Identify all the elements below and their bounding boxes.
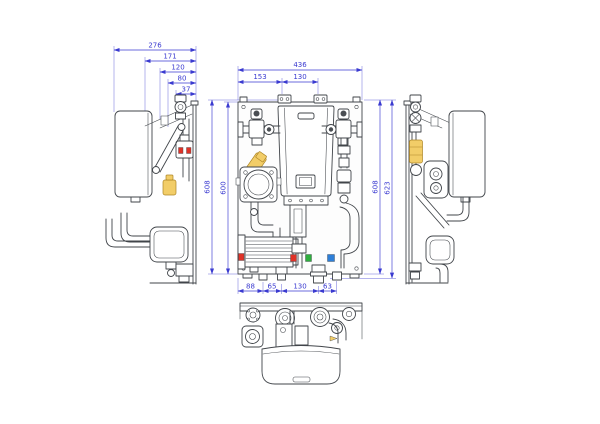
technical-drawing: 276 171 120 80 37 (0, 0, 600, 424)
dimension-label: 37 (182, 86, 191, 94)
heat-exchanger (238, 235, 298, 272)
boiler-cover (278, 106, 334, 205)
dimension-label: 63 (323, 283, 332, 291)
pump-side (424, 161, 448, 198)
brass-detail (330, 336, 337, 341)
top-fittings (175, 95, 186, 119)
dimension-label: 120 (171, 64, 184, 72)
brass-fitting (410, 140, 423, 163)
boiler-bulge (262, 346, 340, 385)
boiler-body-side (449, 111, 485, 202)
dimension-label: 130 (293, 73, 306, 81)
bottom-view (240, 303, 362, 384)
dimension-label: 436 (293, 61, 307, 69)
flanged-pump-body (236, 167, 281, 202)
pump-volute (242, 326, 263, 347)
dimension-label: 623 (384, 181, 392, 194)
pipe-union (411, 165, 422, 176)
drawing-canvas: 276 171 120 80 37 (0, 0, 600, 424)
dimension-label: 88 (246, 283, 255, 291)
dimension-label: 153 (253, 73, 266, 81)
blue-connection-marker (328, 255, 335, 262)
red-connection-marker (239, 254, 245, 261)
dimension-label: 600 (220, 181, 228, 194)
right-side-view (404, 95, 485, 284)
red-connection-marker (291, 255, 297, 262)
dimension-label: 608 (204, 180, 212, 193)
lower-piping (106, 213, 154, 247)
top-fittings (410, 95, 421, 132)
dimension-group: 436 153 130 (238, 61, 362, 100)
pump-box (409, 236, 454, 279)
dimension-label: 171 (163, 53, 176, 61)
dimension-label: 608 (372, 180, 380, 193)
red-valve-cap (179, 148, 184, 154)
boiler-body-side (115, 111, 152, 202)
red-valve-cap (187, 148, 192, 154)
left-side-view: 276 171 120 80 37 (106, 42, 198, 285)
dimension-label: 130 (293, 283, 306, 291)
dimension-label: 276 (148, 42, 162, 50)
brass-valve (163, 175, 176, 195)
pump-box (150, 227, 193, 282)
green-connection-marker (306, 255, 312, 262)
dimension-label: 80 (178, 75, 187, 83)
dimension-label: 65 (268, 283, 277, 291)
front-view: 436 153 130 608 600 608 623 (204, 61, 397, 294)
